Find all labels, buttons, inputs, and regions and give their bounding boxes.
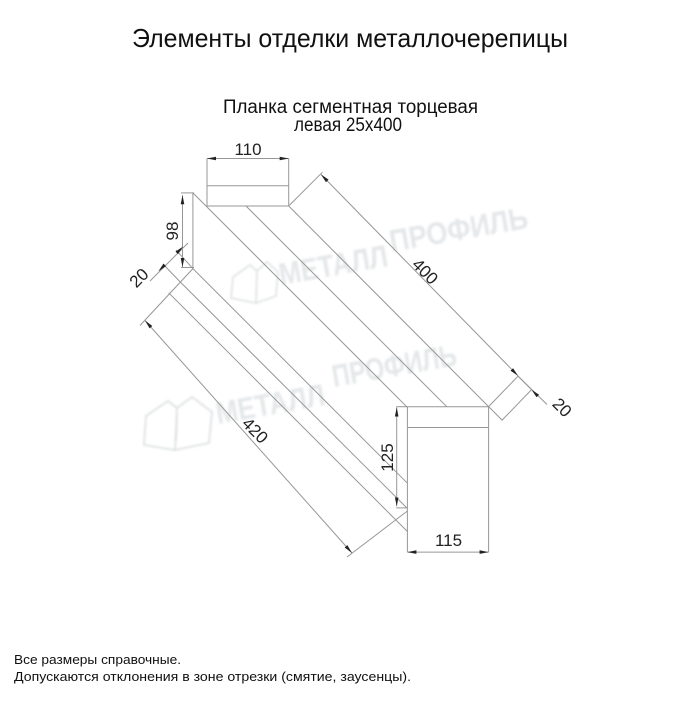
svg-text:115: 115 (435, 531, 462, 550)
svg-text:125: 125 (378, 443, 397, 471)
svg-text:Допускаются отклонения в зоне: Допускаются отклонения в зоне отрезки (с… (14, 669, 411, 684)
svg-text:Элементы отделки металлочерепи: Элементы отделки металлочерепицы (132, 23, 568, 53)
svg-text:110: 110 (234, 140, 261, 159)
svg-text:98: 98 (163, 222, 182, 241)
svg-text:Все размеры справочные.: Все размеры справочные. (14, 652, 181, 667)
svg-text:левая 25х400: левая 25х400 (294, 115, 402, 136)
